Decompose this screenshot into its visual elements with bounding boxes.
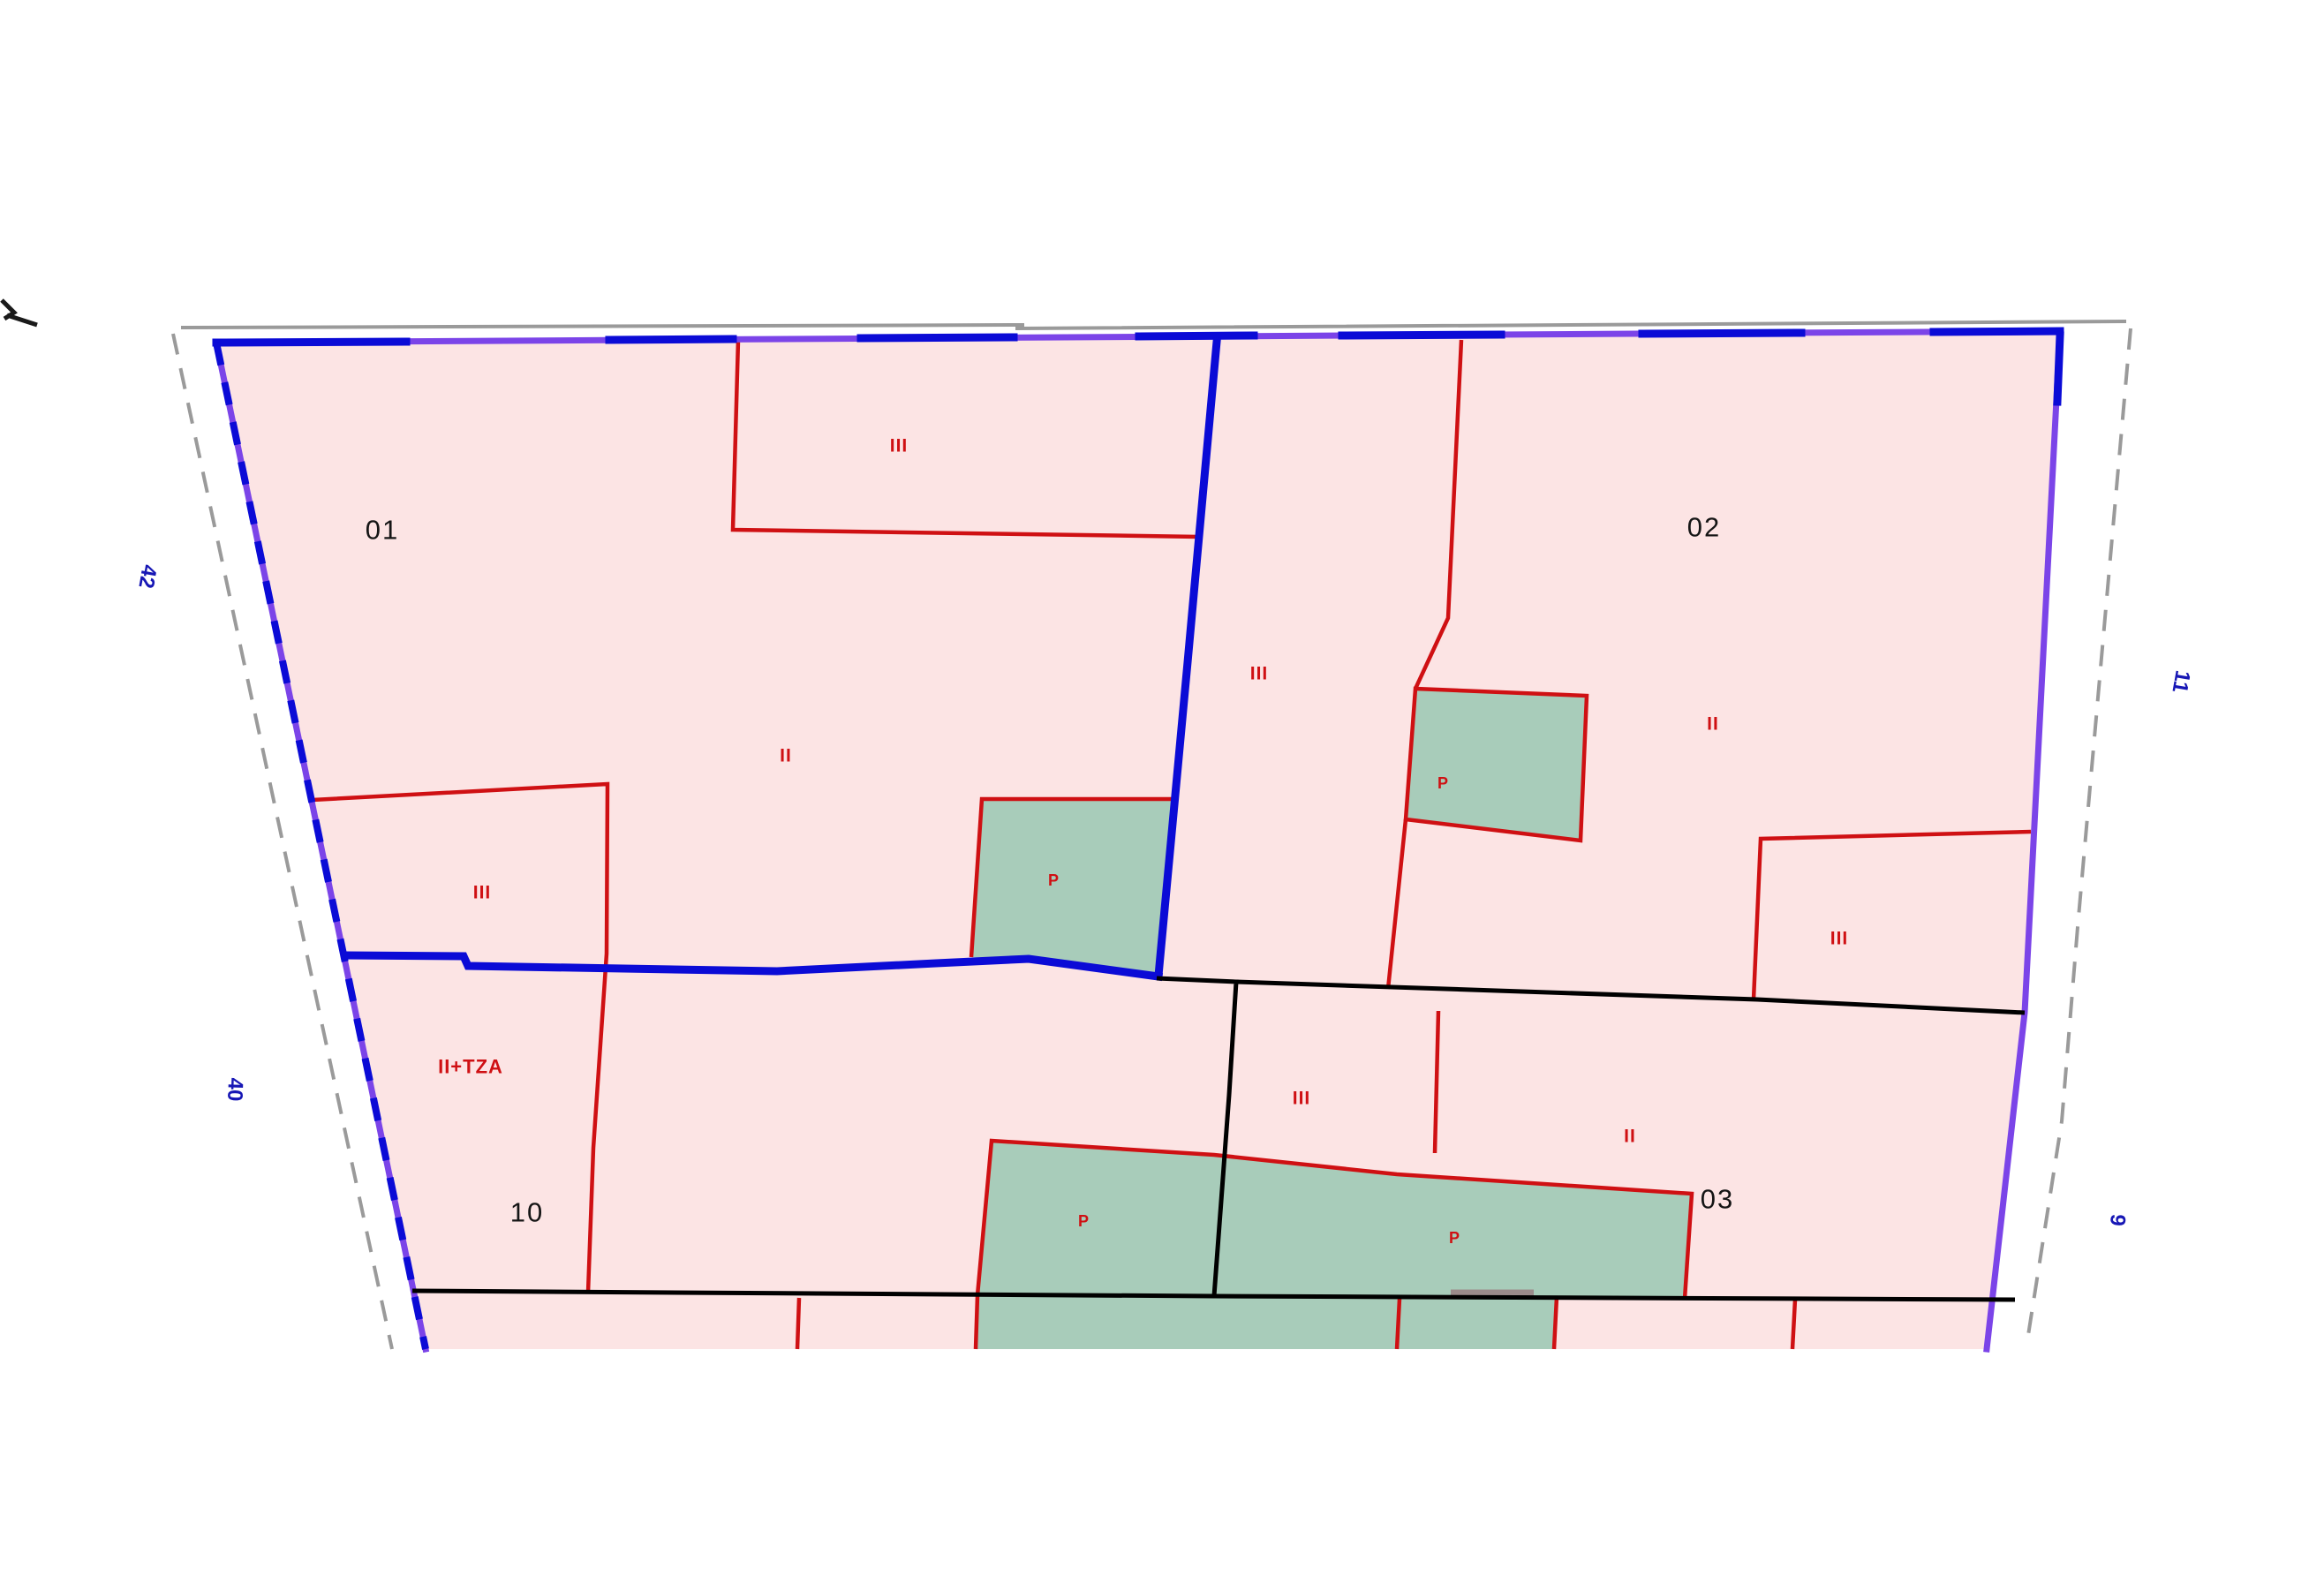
height-label-iii-parcel01-left: III bbox=[473, 883, 492, 903]
height-label-iii-parcel03: III bbox=[1293, 1089, 1311, 1109]
patio-upper-right[interactable] bbox=[1406, 689, 1587, 841]
cutoff-annotation-mark bbox=[2, 300, 37, 325]
cadastral-map: 01 02 10 03 III II III III II III III II… bbox=[0, 0, 2324, 1576]
height-label-iii-parcel02-right: III bbox=[1830, 929, 1849, 949]
parcel-number-10: 10 bbox=[510, 1197, 544, 1228]
parcel-number-02: 02 bbox=[1687, 512, 1721, 543]
patio-label-bottom-left: P bbox=[1078, 1212, 1089, 1230]
height-label-ii-terrace: II+TZA bbox=[438, 1056, 503, 1078]
height-label-iii-parcel02-left: III bbox=[1250, 664, 1269, 684]
height-label-iii-top: III bbox=[890, 436, 909, 456]
street-number-40: 40 bbox=[223, 1077, 247, 1102]
parcel-number-03: 03 bbox=[1701, 1184, 1734, 1215]
patio-bottom-lower[interactable] bbox=[976, 1295, 1557, 1349]
patio-label-central: P bbox=[1048, 871, 1059, 889]
patio-label-upper-right: P bbox=[1437, 774, 1448, 792]
street-number-11: 11 bbox=[2168, 668, 2195, 695]
street-edge-top-gray bbox=[181, 321, 2126, 328]
patio-label-bottom-right: P bbox=[1449, 1229, 1460, 1247]
patio-central[interactable] bbox=[971, 799, 1175, 976]
height-label-ii-parcel03: II bbox=[1624, 1127, 1636, 1147]
street-number-9: 9 bbox=[2105, 1213, 2130, 1227]
parcel-number-01: 01 bbox=[366, 515, 399, 546]
cadastral-map-canvas: 01 02 10 03 III II III III II III III II… bbox=[0, 0, 2324, 1576]
height-label-ii-parcel02: II bbox=[1707, 714, 1719, 735]
boundary-blue-dash-right bbox=[2057, 336, 2060, 402]
height-label-ii-parcel01: II bbox=[780, 746, 792, 766]
street-number-42: 42 bbox=[133, 563, 161, 591]
